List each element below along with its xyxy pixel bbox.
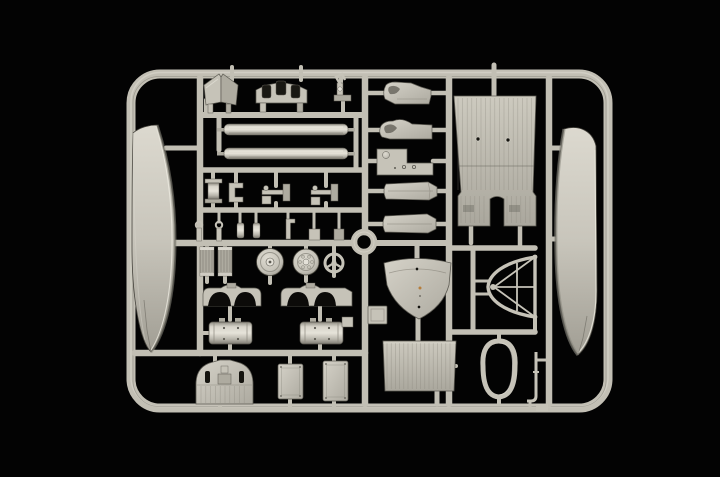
float-deck-panel-1 (384, 182, 437, 200)
radiator-core-1 (200, 247, 214, 276)
engine-cowling-panel (196, 360, 253, 404)
float-spar-rod-lower (217, 148, 355, 159)
engine-front-disc (293, 249, 319, 275)
access-panel-2 (323, 361, 348, 401)
photo-canvas (0, 0, 720, 477)
small-cylinder-1 (237, 223, 244, 238)
fuel-tank-drum-2 (300, 318, 343, 344)
float-deck-panel-2 (383, 214, 436, 233)
small-block-1 (309, 229, 320, 240)
clamp-bracket (342, 317, 353, 327)
model-kit-sprue-photo (0, 0, 720, 477)
float-spar-rod-upper (217, 124, 355, 135)
small-block-2 (334, 229, 344, 240)
fuel-tank-drum-1 (209, 318, 252, 344)
part-number-tag (368, 306, 387, 324)
access-panel-1 (278, 364, 303, 399)
right-wing-half (556, 128, 597, 355)
small-cylinder-2 (253, 223, 260, 238)
molded-number-bump (536, 404, 548, 411)
radiator-core-2 (218, 247, 232, 276)
corrugated-floor-panel (383, 341, 456, 391)
main-wheel (257, 249, 284, 276)
